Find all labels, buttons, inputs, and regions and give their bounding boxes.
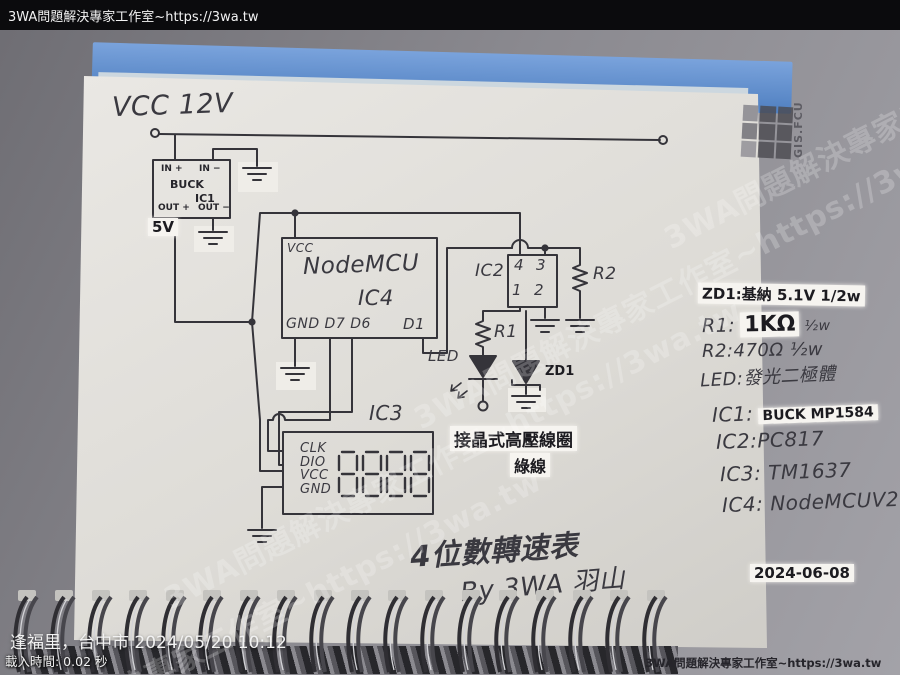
sheet-date: 2024-06-08 xyxy=(750,564,854,582)
gis-fcu-stamp-text: GIS.FCU xyxy=(792,101,805,158)
mcu-name: NodeMCU xyxy=(303,250,420,280)
opto-pin3: 3 xyxy=(536,256,546,274)
coil-note-line2: 綠線 xyxy=(510,453,550,477)
bottom-right-studio-text: 3WA問題解決專家工作室~https://3wa.tw xyxy=(645,655,881,671)
note-zd1: ZD1:基納 5.1V 1/2w xyxy=(698,283,865,307)
opto-ref: IC2 xyxy=(475,261,504,281)
opto-pin4: 4 xyxy=(514,256,524,274)
load-time-text: 載入時間: 0.02 秒 xyxy=(5,651,108,670)
note-r1-prefix: R1: xyxy=(702,315,736,338)
note-r1-suffix: ½w xyxy=(804,318,830,334)
note-ic1-value: BUCK MP1584 xyxy=(758,404,878,424)
display-pin-clk: CLK xyxy=(300,441,326,456)
opto-pin2: 2 xyxy=(534,281,544,299)
gis-fcu-stamp-logo xyxy=(741,105,794,160)
buck-pin-out-plus: OUT + xyxy=(158,203,190,213)
display-pin-vcc: VCC xyxy=(300,468,329,483)
buck-pin-in-plus: IN + xyxy=(161,164,183,174)
note-r1-value: 1KΩ xyxy=(740,311,799,337)
mcu-d1-pin: D1 xyxy=(403,315,425,333)
location-timestamp-text: 逢福里，台中市 2024/05/20 10:12 xyxy=(10,628,287,653)
coil-note-line1: 接晶式高壓線圈 xyxy=(450,426,577,451)
top-left-studio-text: 3WA問題解決專家工作室~https://3wa.tw xyxy=(8,6,259,25)
note-r1: R1: 1KΩ ½w xyxy=(702,311,831,338)
note-ic1-prefix: IC1: xyxy=(712,401,754,426)
r2-label: R2 xyxy=(593,264,617,284)
opto-pin1: 1 xyxy=(512,281,522,299)
display-pin-gnd: GND xyxy=(300,482,331,497)
buck-pin-in-minus: IN − xyxy=(199,164,221,174)
photo-of-schematic-notebook: GIS.FCU xyxy=(0,0,900,675)
note-ic2: IC2:PC817 xyxy=(716,426,825,454)
mcu-ref: IC4 xyxy=(358,286,394,310)
note-r2: R2:470Ω ½w xyxy=(702,339,823,362)
display-ref: IC3 xyxy=(369,401,403,425)
buck-5v-label: 5V xyxy=(148,218,178,236)
buck-pin-out-minus: OUT − xyxy=(198,203,230,213)
led-label: LED xyxy=(428,347,459,365)
mcu-bottom-pins: GND D7 D6 xyxy=(286,316,371,332)
power-rail-label: VCC 12V xyxy=(111,88,233,123)
r1-label: R1 xyxy=(494,322,518,342)
note-ic3: IC3: TM1637 xyxy=(720,458,852,487)
buck-name: BUCK xyxy=(170,178,204,191)
zd1-label: ZD1 xyxy=(545,364,574,379)
